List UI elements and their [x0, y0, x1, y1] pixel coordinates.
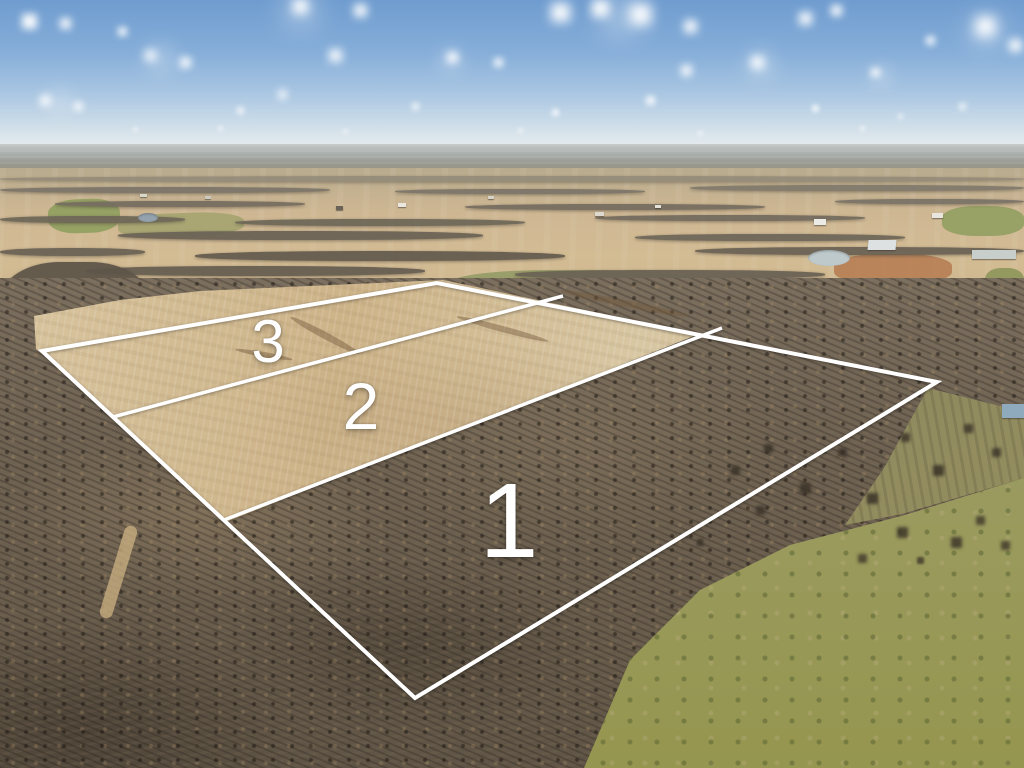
lot-divider-line — [224, 328, 722, 520]
lot-label-3: 3 — [251, 312, 284, 372]
lot-boundary-overlay — [0, 0, 1024, 768]
aerial-photo-canvas: 1 2 3 — [0, 0, 1024, 768]
lot-divider-line — [113, 296, 563, 417]
lot-label-1: 1 — [480, 468, 539, 574]
lot-label-2: 2 — [343, 373, 380, 439]
